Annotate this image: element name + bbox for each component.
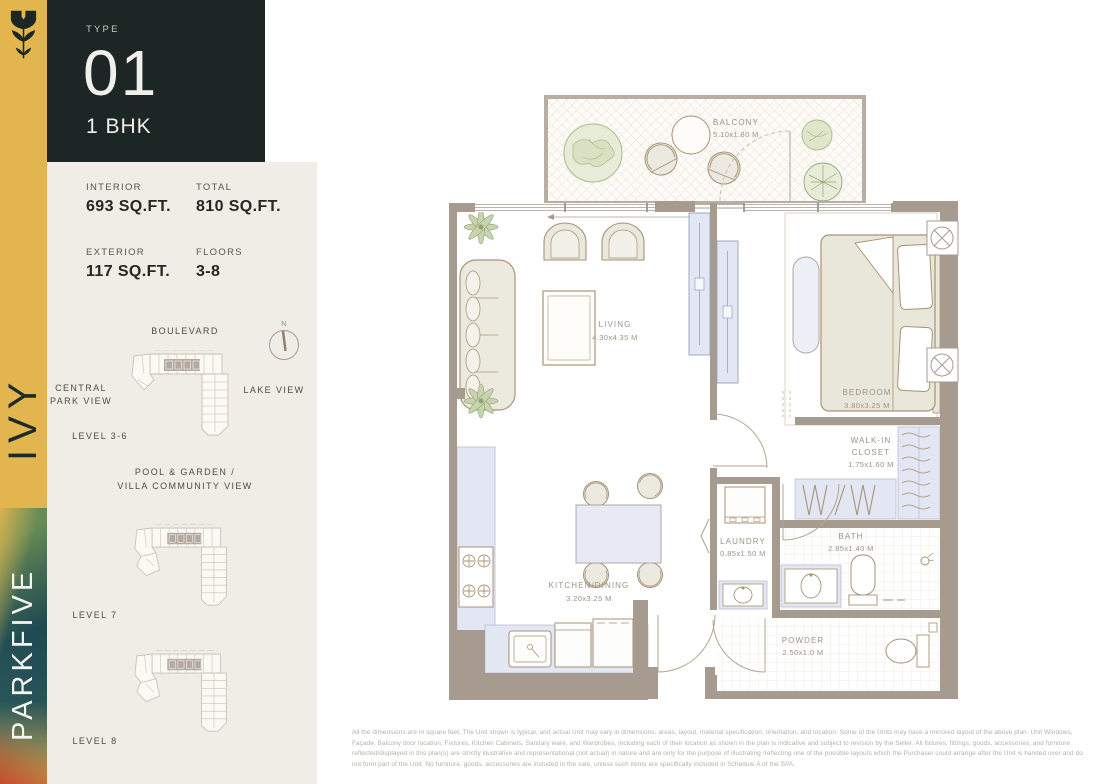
bedroom-label: BEDROOM [842,388,891,397]
svg-text:2.85x1.40 M: 2.85x1.40 M [828,544,874,553]
hob [459,547,493,607]
bath-label: BATH [838,532,863,541]
sofa [460,260,515,410]
svg-text:4.30x4.35 M: 4.30x4.35 M [592,333,638,342]
laundry-label: LAUNDRY [720,537,766,546]
indoor-plant [464,384,498,418]
type-number: 01 [83,36,158,110]
bedroom-bench [793,257,819,353]
svg-text:1.75x1.60 M: 1.75x1.60 M [848,460,894,469]
level-8-label: LEVEL 8 [55,736,135,746]
svg-text:0.85x1.50 M: 0.85x1.50 M [720,549,766,558]
keyplan-level-7-diagram [133,524,233,614]
armchair [602,223,644,260]
living-label: LIVING [599,320,632,329]
project-name-vertical: PARKFIVE [0,535,47,773]
svg-text:CLOSET: CLOSET [852,448,891,457]
bath-vanity [781,565,841,607]
indoor-plant [464,210,498,244]
dining-chair [638,563,663,588]
dining-chair [584,482,609,507]
keyplan-level-8-diagram [133,650,233,740]
exterior-value: 117 SQ.FT. [86,263,170,281]
total-label: TOTAL [196,182,232,193]
bed [821,225,940,413]
compass-icon: N [262,316,306,366]
lake-view-label: LAKE VIEW [238,385,310,395]
balcony-area [546,97,864,203]
floors-label: FLOORS [196,247,243,258]
coffee-table [543,291,595,365]
pool-garden-label-line1: POOL & GARDEN / [85,467,285,477]
unit-bhk: 1 BHK [86,115,152,139]
floorplan-brochure-page: IVY PARKFIVE TYPE 01 1 BHK INTERIOR 693 … [0,0,1112,784]
tulip-logo-icon [7,8,40,64]
level-3-6-label: LEVEL 3-6 [60,431,140,441]
exterior-label: EXTERIOR [86,247,145,258]
dining-chair [632,468,667,503]
central-park-view-label-line2: PARK VIEW [46,396,116,406]
dining-table [576,505,661,563]
kitchen-appliances [555,619,633,667]
svg-text:5.10x1.80 M: 5.10x1.80 M [713,130,759,139]
balcony-tree [564,124,622,182]
interior-value: 693 SQ.FT. [86,198,171,216]
powder-vanity [719,581,767,609]
svg-text:N: N [281,319,286,328]
total-value: 810 SQ.FT. [196,198,281,216]
svg-text:3.80x3.25 M: 3.80x3.25 M [844,401,890,410]
unit-floorplan-drawing: BALCONY 5.10x1.80 M LIVING 4.30x4.35 M B… [443,95,970,713]
balcony-table [672,116,710,154]
tower-name-vertical: IVY [0,352,47,484]
armchair [544,223,586,260]
walkin-label: WALK-IN [851,436,892,445]
pool-garden-label-line2: VILLA COMMUNITY VIEW [85,481,285,491]
boulevard-label: BOULEVARD [105,326,265,336]
kitchen-label: KITCHEN/DINING [549,581,630,590]
interior-label: INTERIOR [86,182,142,193]
balcony-label: BALCONY [713,118,759,127]
keyplan-level-3-6-diagram [130,350,235,444]
svg-text:3.20x3.25 M: 3.20x3.25 M [566,594,612,603]
washer [725,487,765,523]
type-label: TYPE [86,24,120,35]
disclaimer-text: All the dimensions are in square feet. T… [352,728,1092,770]
svg-text:2.50x1.0 M: 2.50x1.0 M [782,648,823,657]
powder-label: POWDER [782,636,825,645]
level-7-label: LEVEL 7 [55,610,135,620]
floors-value: 3-8 [196,263,220,281]
kitchen-sink [509,631,551,667]
unit-header-panel: TYPE 01 1 BHK [47,0,265,162]
central-park-view-label-line1: CENTRAL [46,383,116,393]
